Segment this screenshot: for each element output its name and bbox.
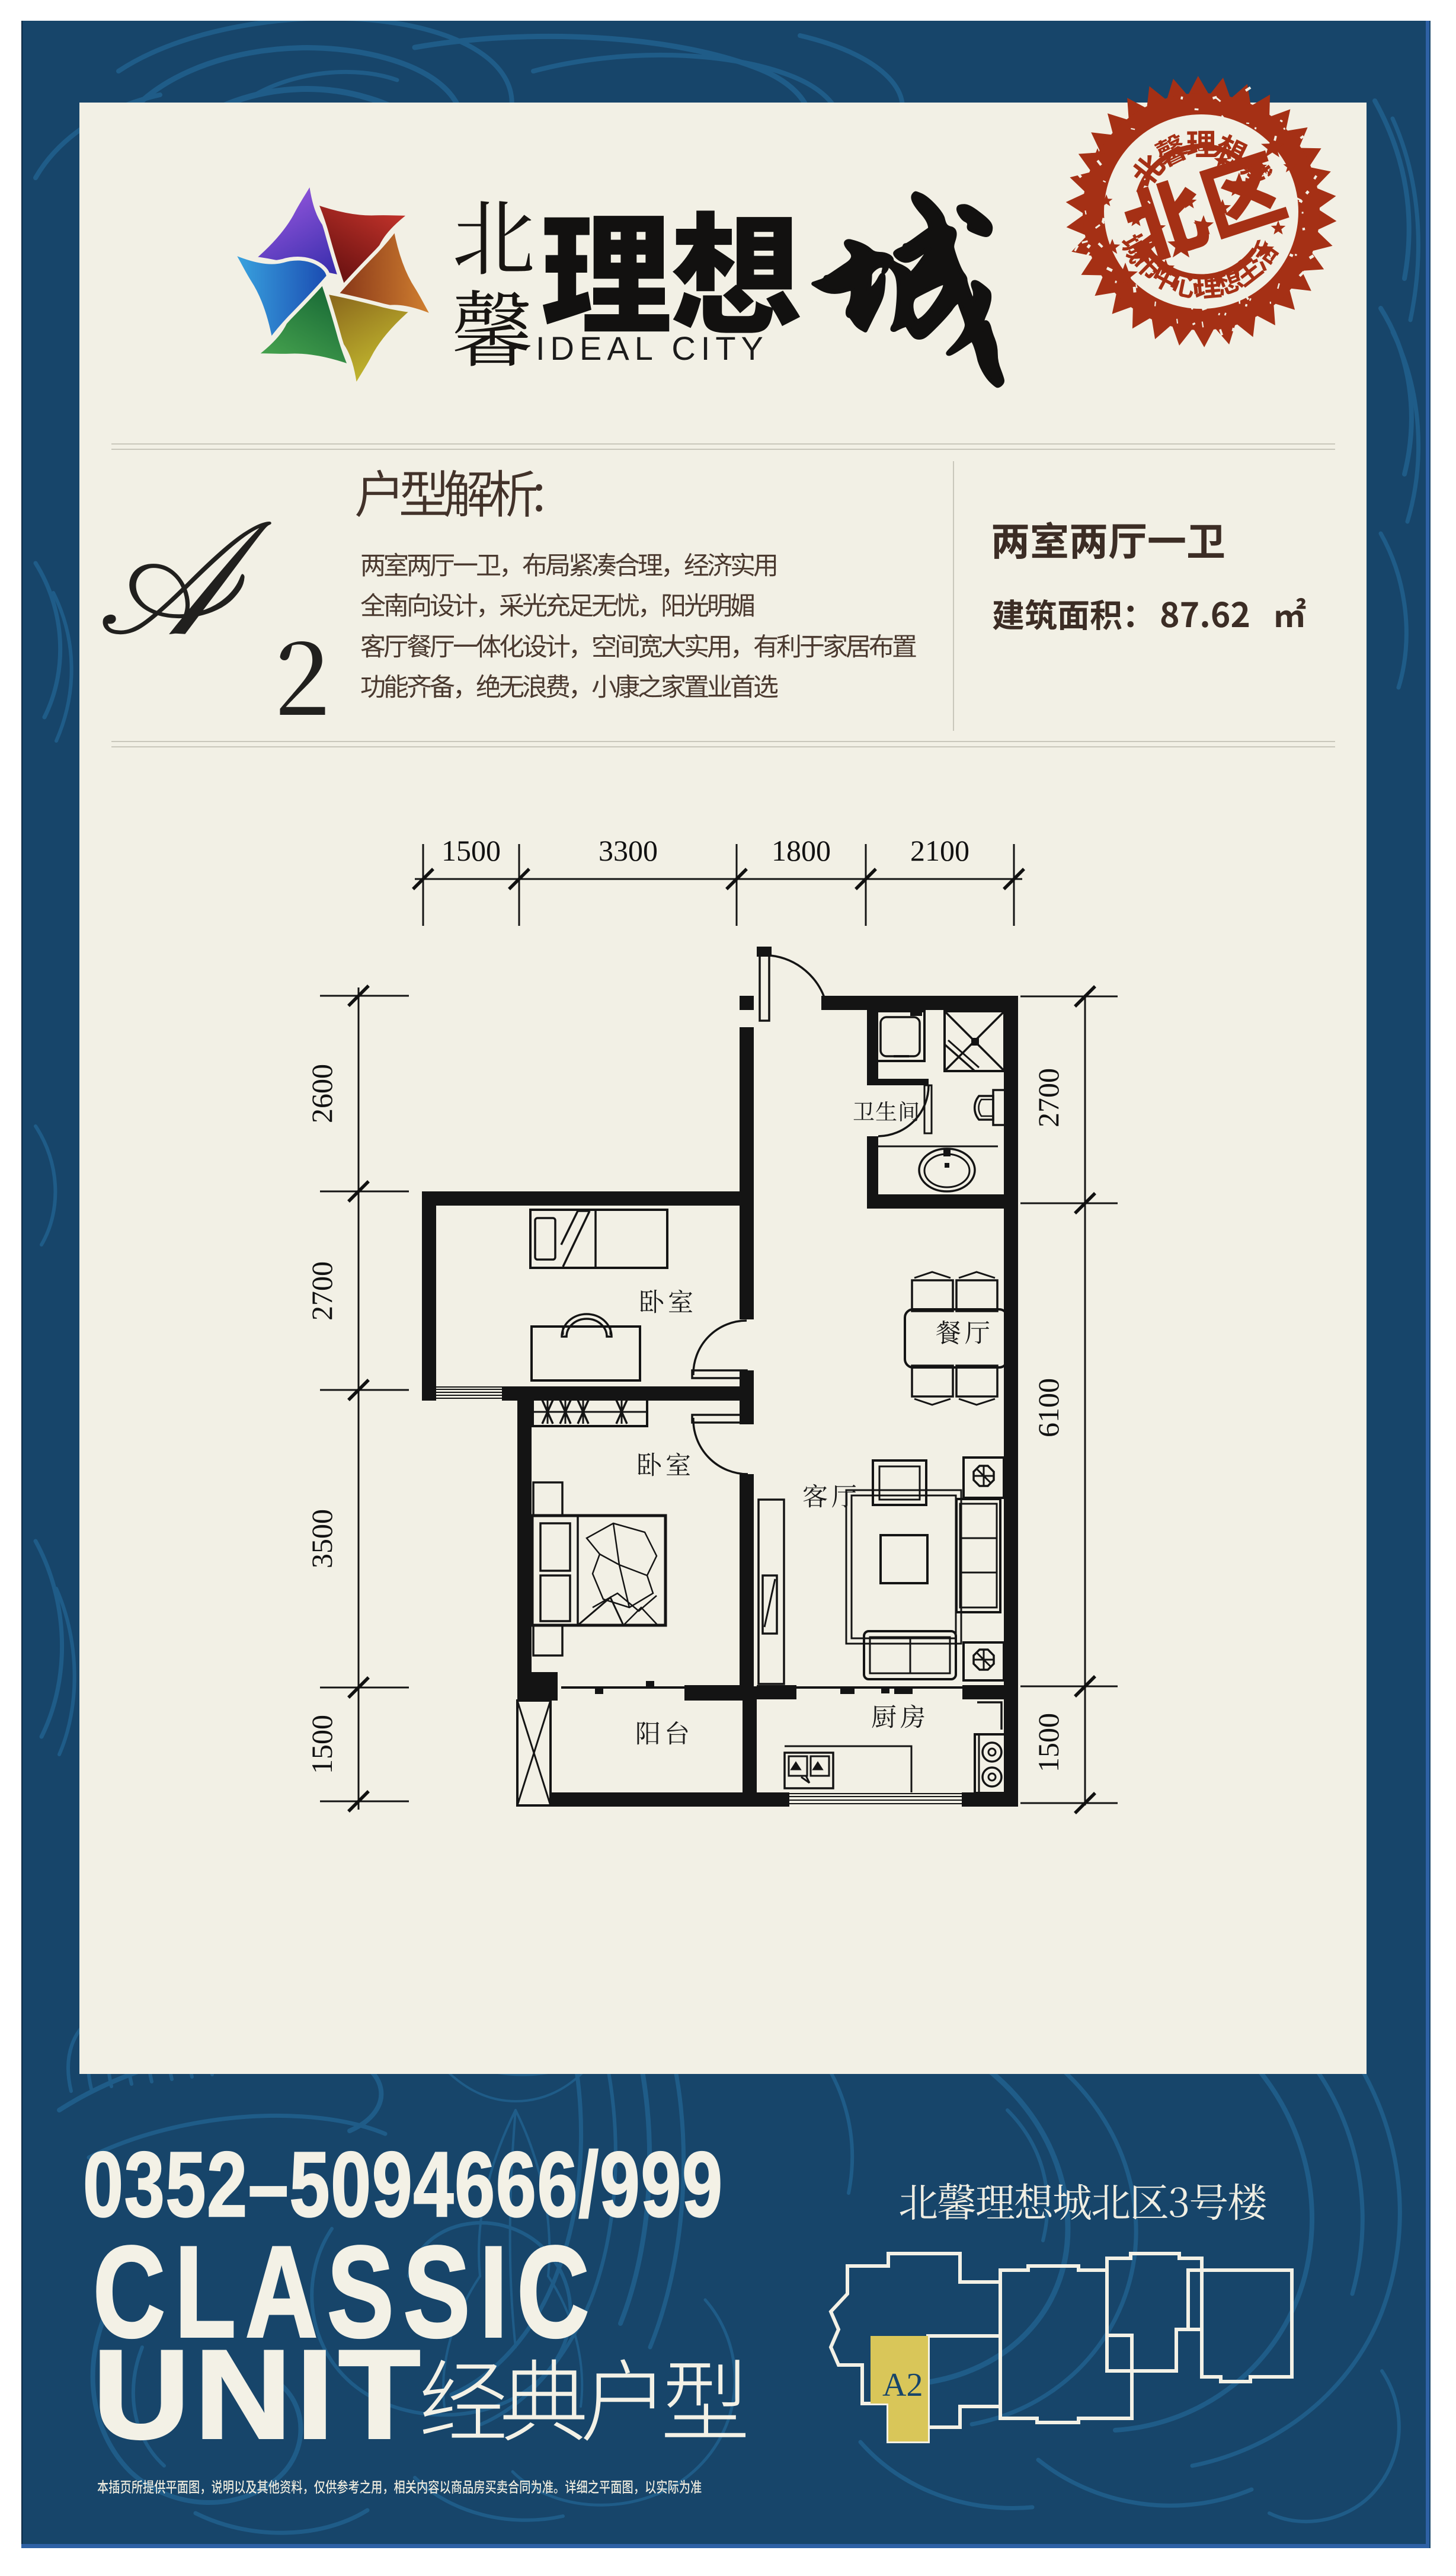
svg-text:1500: 1500 [441, 834, 501, 867]
svg-text:3300: 3300 [599, 834, 658, 867]
svg-text:2700: 2700 [1032, 1068, 1065, 1127]
svg-text:A2: A2 [882, 2367, 923, 2404]
svg-text:2600: 2600 [305, 1064, 338, 1123]
svg-text:1500: 1500 [305, 1715, 338, 1774]
svg-text:6100: 6100 [1032, 1378, 1065, 1437]
svg-text:3500: 3500 [305, 1509, 338, 1568]
svg-text:1500: 1500 [1032, 1713, 1065, 1772]
svg-text:2100: 2100 [910, 834, 969, 867]
svg-text:1800: 1800 [772, 834, 831, 867]
svg-text:2700: 2700 [305, 1261, 338, 1321]
svg-text:IDEAL CITY: IDEAL CITY [536, 330, 769, 367]
